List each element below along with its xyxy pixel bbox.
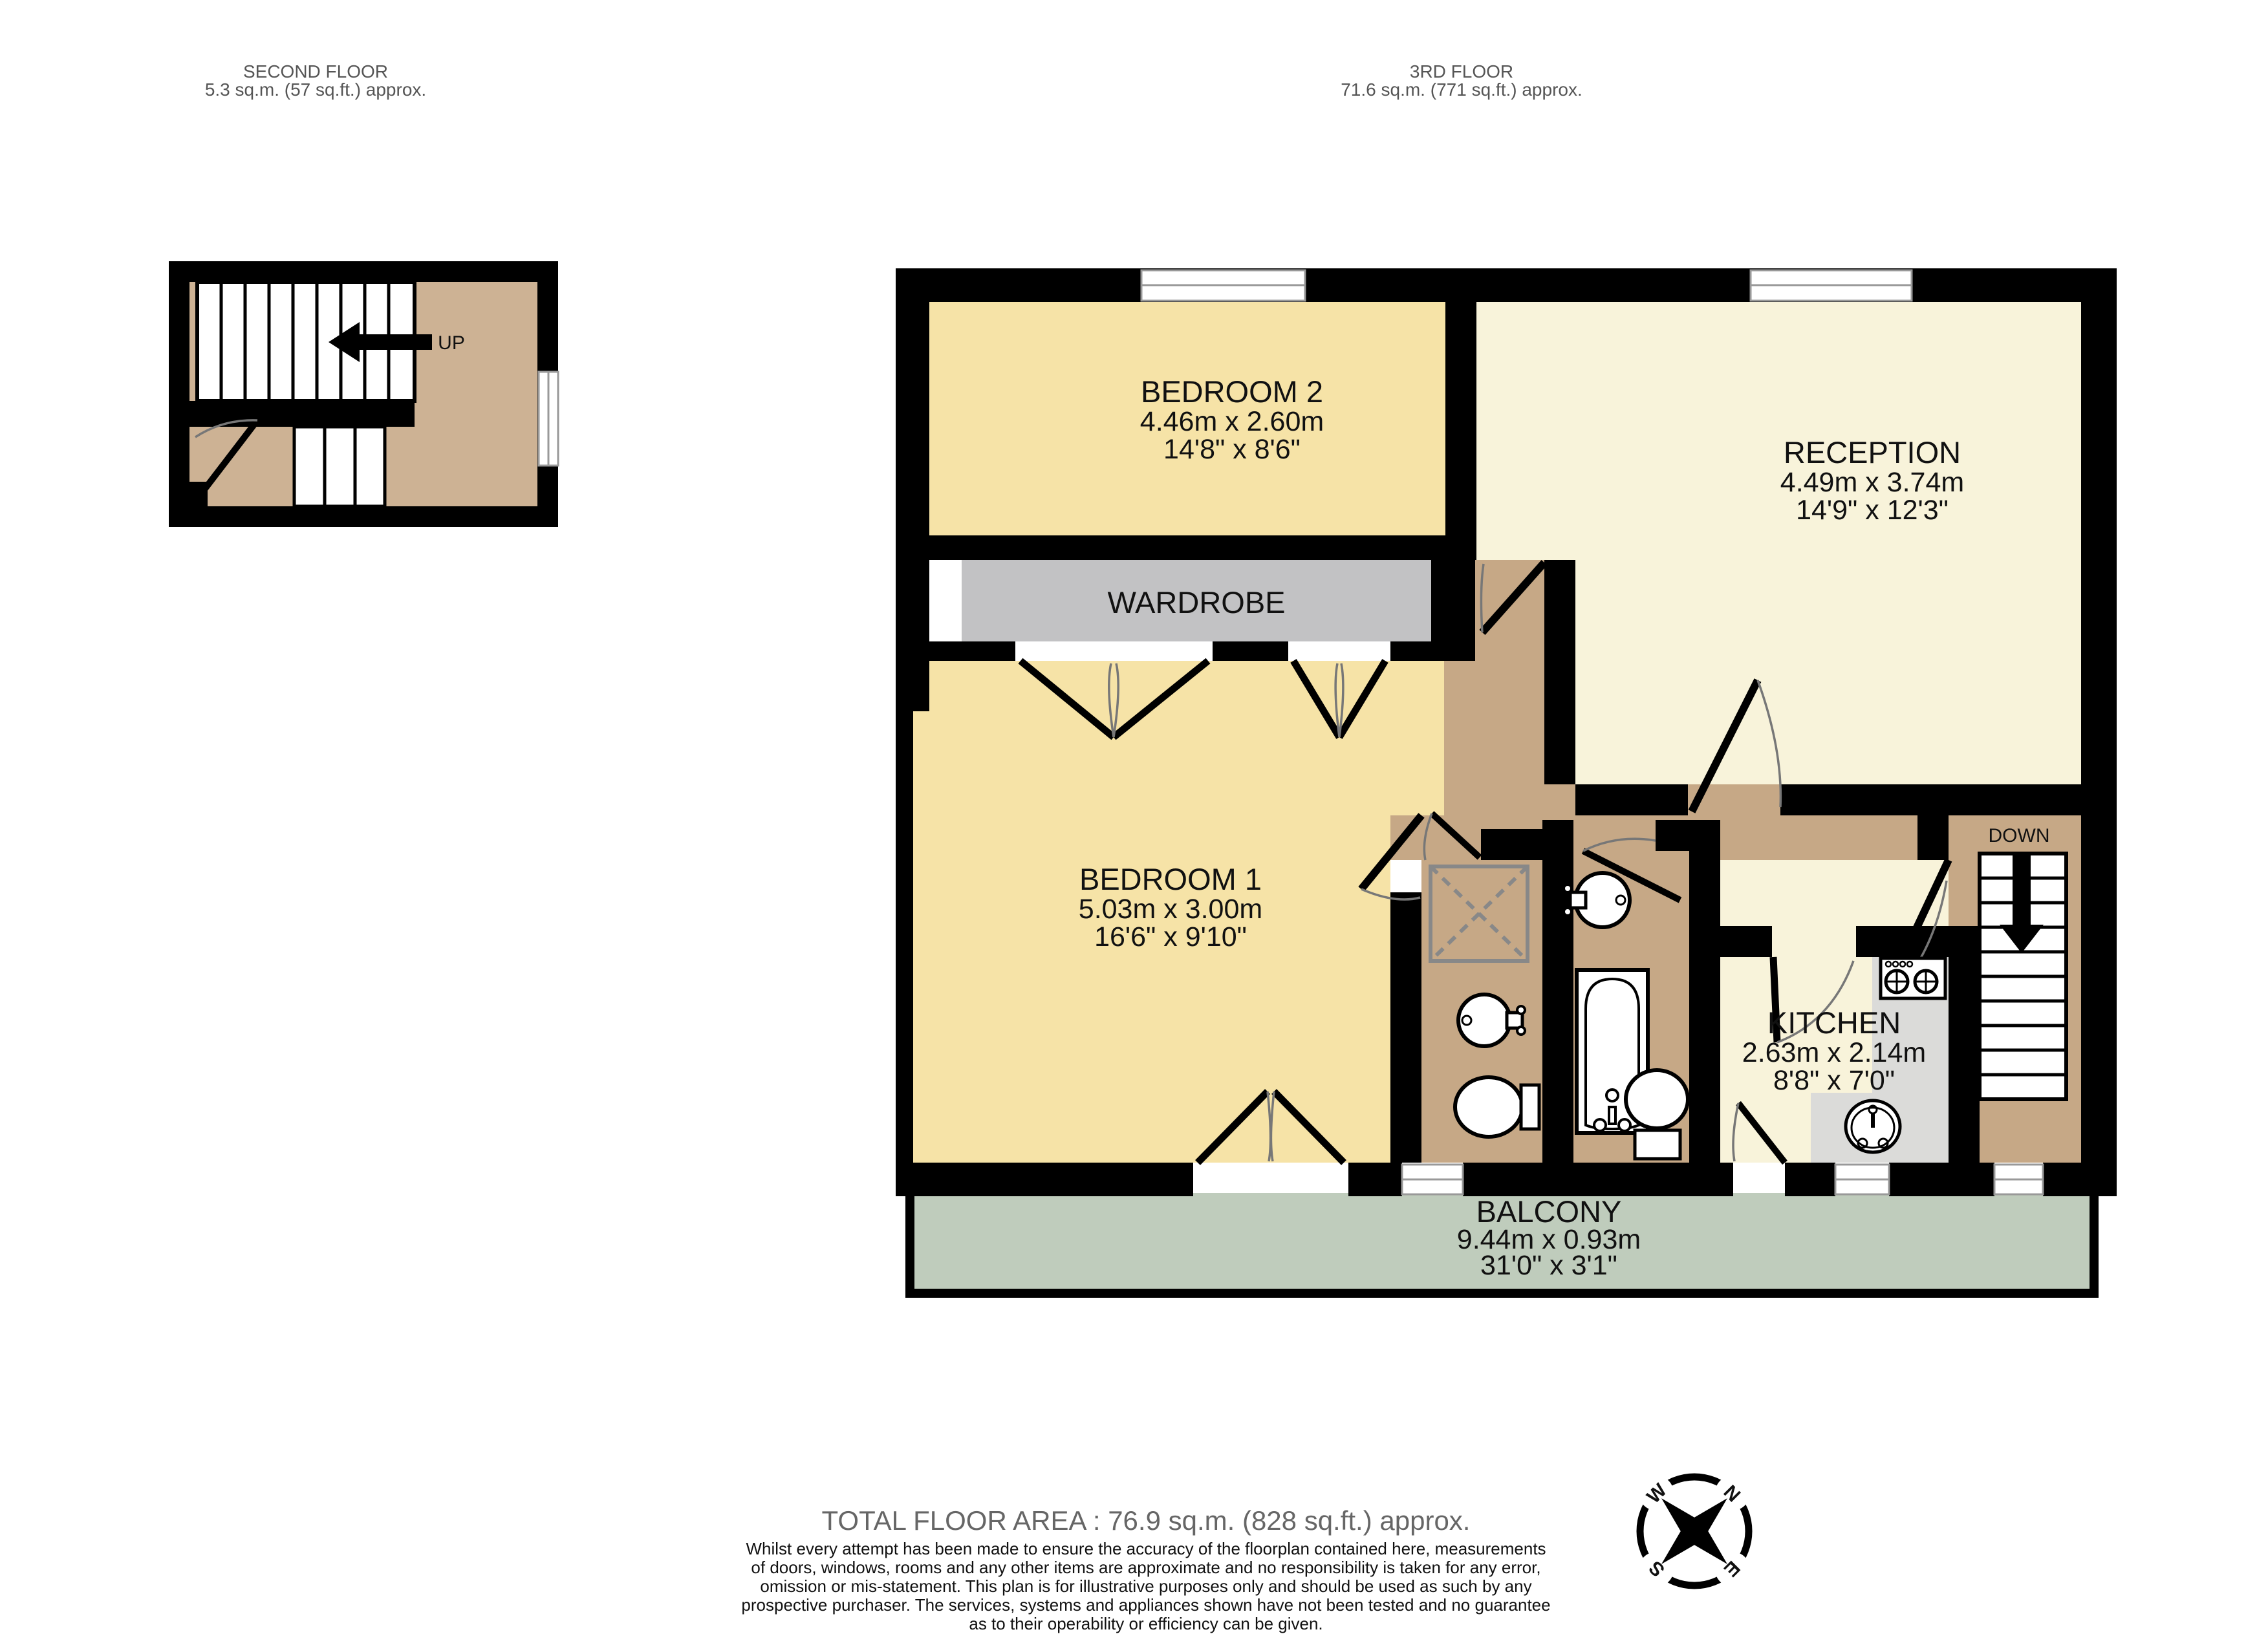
svg-text:4.49m x 3.74m: 4.49m x 3.74m <box>1780 467 1964 498</box>
floorplan-canvas: SECOND FLOOR 5.3 sq.m. (57 sq.ft.) appro… <box>0 0 2268 1634</box>
svg-text:RECEPTION: RECEPTION <box>1784 435 1961 469</box>
floorplan-page: SECOND FLOOR 5.3 sq.m. (57 sq.ft.) appro… <box>0 0 2268 1634</box>
reception-label: RECEPTION 4.49m x 3.74m 14'9" x 12'3" <box>1780 435 1964 526</box>
up-label: UP <box>438 332 465 354</box>
kitchen-window <box>1835 1165 1889 1194</box>
landing-window <box>1994 1165 2043 1194</box>
hall-upper-floor <box>1444 661 1475 784</box>
bedroom1-entry-nook <box>1390 661 1444 815</box>
second-floor-plan: UP <box>169 261 558 527</box>
footer: TOTAL FLOOR AREA : 76.9 sq.m. (828 sq.ft… <box>741 1505 1550 1634</box>
bedroom2-label: BEDROOM 2 4.46m x 2.60m 14'8" x 8'6" <box>1140 374 1324 465</box>
stairs-up <box>197 282 432 401</box>
sink-icon <box>1846 1101 1900 1152</box>
total-floor-area: TOTAL FLOOR AREA : 76.9 sq.m. (828 sq.ft… <box>822 1505 1471 1536</box>
second-floor-mid-wall <box>189 401 415 427</box>
disclaimer-line: prospective purchaser. The services, sys… <box>741 1595 1550 1615</box>
toilet-icon <box>1626 1070 1688 1159</box>
second-floor-window <box>539 372 558 466</box>
second-floor-area: 5.3 sq.m. (57 sq.ft.) approx. <box>205 80 426 100</box>
shower-window <box>1402 1165 1463 1194</box>
svg-text:14'9" x 12'3": 14'9" x 12'3" <box>1796 495 1949 526</box>
disclaimer-line: Whilst every attempt has been made to en… <box>746 1539 1546 1558</box>
hob-icon <box>1881 958 1945 998</box>
svg-text:BEDROOM 2: BEDROOM 2 <box>1141 374 1323 409</box>
svg-text:14'8" x 8'6": 14'8" x 8'6" <box>1163 434 1301 465</box>
compass-icon: N E S W <box>1628 1465 1760 1597</box>
balcony-label: BALCONY 9.44m x 0.93m 31'0" x 3'1" <box>1457 1194 1641 1281</box>
bedroom1-label: BEDROOM 1 5.03m x 3.00m 16'6" x 9'10" <box>1079 862 1262 952</box>
wardrobe-label: WARDROBE <box>1107 585 1285 619</box>
svg-text:31'0" x 3'1": 31'0" x 3'1" <box>1480 1250 1617 1281</box>
svg-text:5.03m x 3.00m: 5.03m x 3.00m <box>1079 894 1262 925</box>
svg-text:4.46m x 2.60m: 4.46m x 2.60m <box>1140 406 1324 437</box>
svg-text:BEDROOM 1: BEDROOM 1 <box>1079 862 1262 896</box>
floor-headers: SECOND FLOOR 5.3 sq.m. (57 sq.ft.) appro… <box>205 61 1582 100</box>
stairs-return <box>294 427 385 506</box>
reception-window <box>1751 270 1912 301</box>
disclaimer-line: as to their operability or efficiency ca… <box>969 1614 1323 1633</box>
disclaimer-line: omission or mis-statement. This plan is … <box>760 1576 1531 1596</box>
svg-text:KITCHEN: KITCHEN <box>1767 1005 1901 1040</box>
svg-text:16'6" x 9'10": 16'6" x 9'10" <box>1094 921 1247 952</box>
second-floor-title: SECOND FLOOR <box>243 61 388 81</box>
third-floor-title: 3RD FLOOR <box>1410 61 1513 81</box>
stairs-down <box>1980 854 2066 1099</box>
svg-text:2.63m x 2.14m: 2.63m x 2.14m <box>1742 1037 1926 1068</box>
toilet-icon <box>1455 1077 1539 1137</box>
svg-text:8'8" x 7'0": 8'8" x 7'0" <box>1773 1065 1895 1096</box>
bedroom2-window <box>1141 270 1305 301</box>
third-floor-area: 71.6 sq.m. (771 sq.ft.) approx. <box>1341 80 1582 100</box>
down-label: DOWN <box>1989 825 2050 846</box>
disclaimer-line: of doors, windows, rooms and any other i… <box>751 1558 1540 1577</box>
